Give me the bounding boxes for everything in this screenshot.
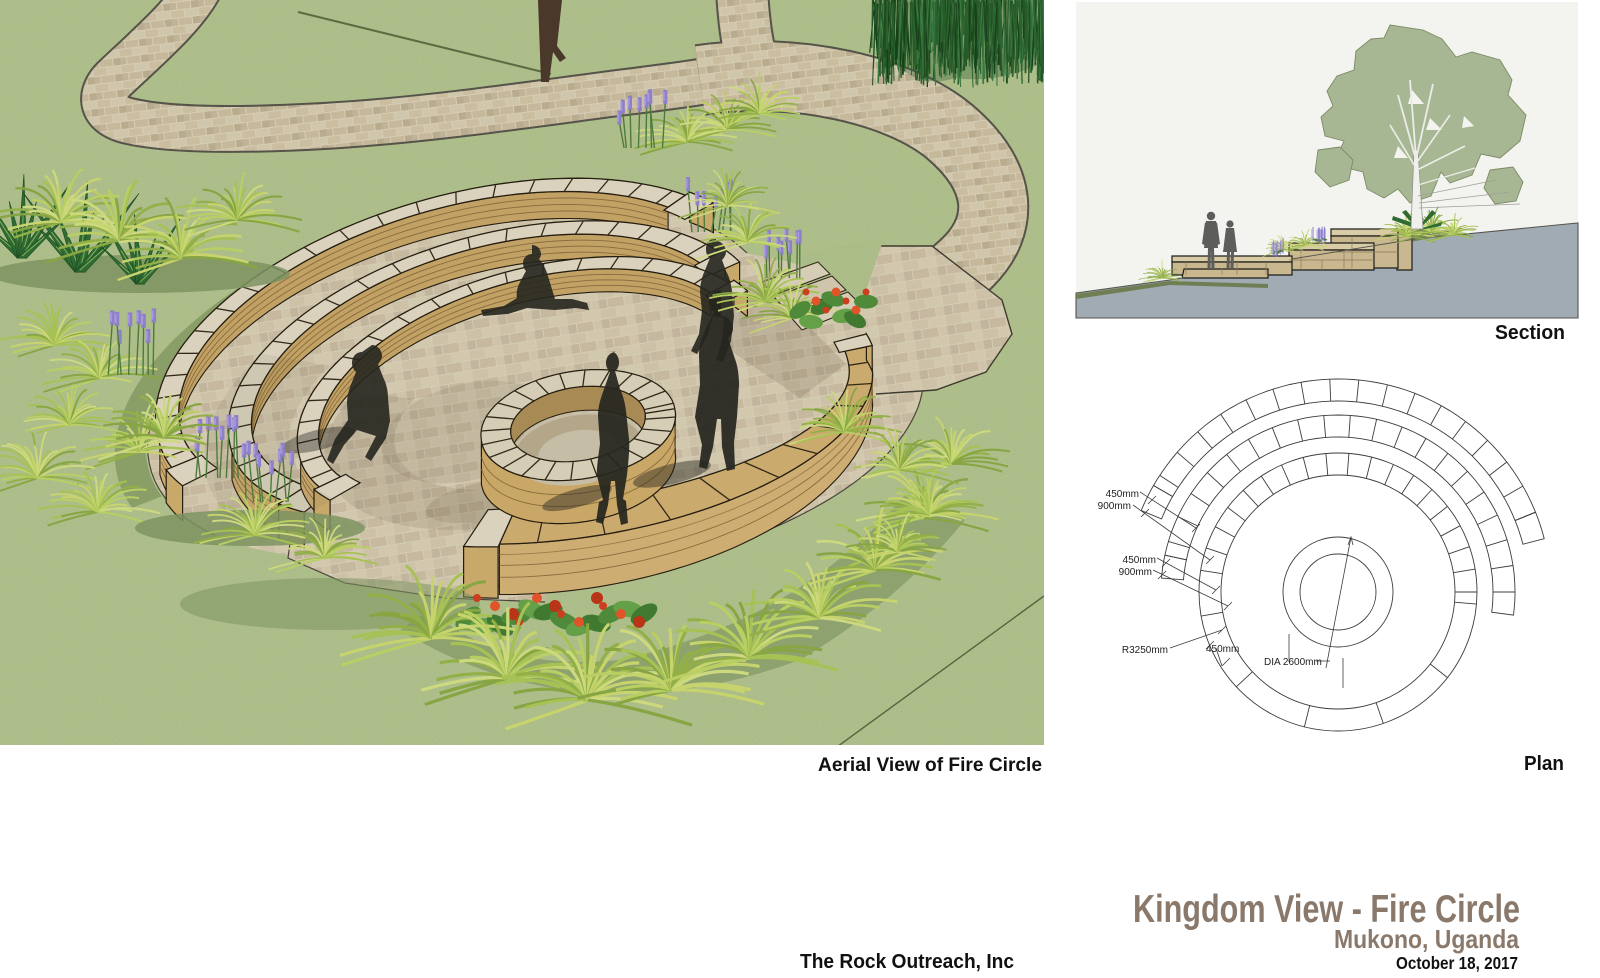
svg-text:DIA 2600mm: DIA 2600mm xyxy=(1264,657,1322,668)
svg-text:Section: Section xyxy=(1495,322,1565,344)
svg-text:October 18, 2017: October 18, 2017 xyxy=(1396,953,1518,973)
svg-text:Aerial View of Fire Circle: Aerial View of Fire Circle xyxy=(818,754,1042,776)
svg-text:R3250mm: R3250mm xyxy=(1122,645,1168,656)
svg-text:Plan: Plan xyxy=(1524,753,1564,775)
svg-text:900mm: 900mm xyxy=(1119,567,1152,578)
svg-text:The Rock Outreach, Inc: The Rock Outreach, Inc xyxy=(800,951,1014,973)
svg-text:900mm: 900mm xyxy=(1098,501,1131,512)
svg-text:450mm: 450mm xyxy=(1106,489,1139,500)
svg-text:Mukono, Uganda: Mukono, Uganda xyxy=(1334,924,1519,954)
svg-text:450mm: 450mm xyxy=(1206,644,1239,655)
svg-text:450mm: 450mm xyxy=(1123,555,1156,566)
